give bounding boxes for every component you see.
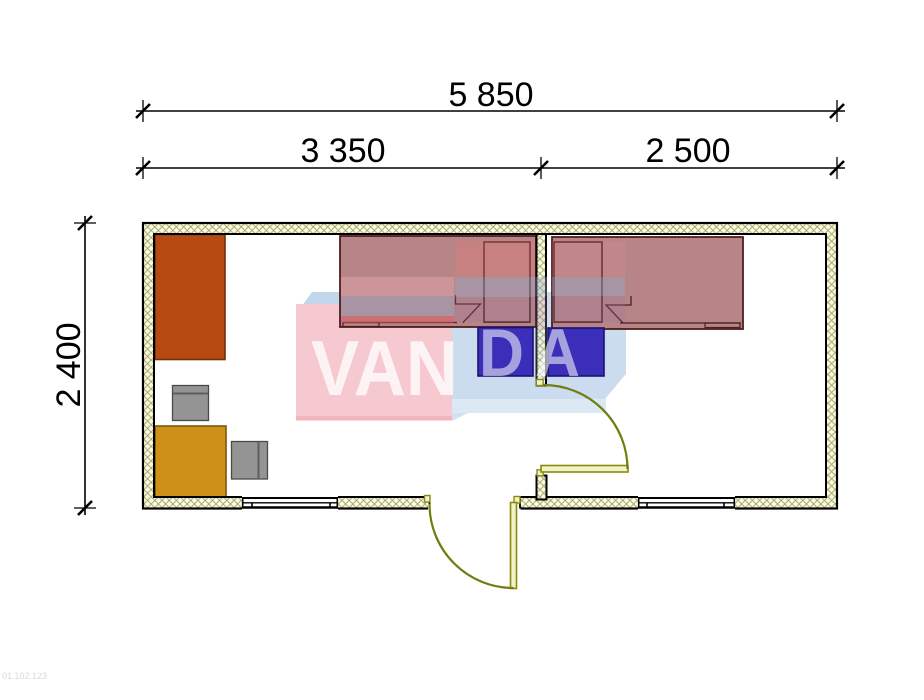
svg-text:5 850: 5 850 <box>448 76 533 114</box>
svg-text:3 350: 3 350 <box>300 132 385 170</box>
svg-text:01.102.123: 01.102.123 <box>2 671 47 681</box>
svg-text:VAN: VAN <box>311 324 458 412</box>
svg-text:DA: DA <box>479 315 591 391</box>
svg-text:2 500: 2 500 <box>645 132 730 170</box>
svg-text:2 400: 2 400 <box>50 322 88 407</box>
